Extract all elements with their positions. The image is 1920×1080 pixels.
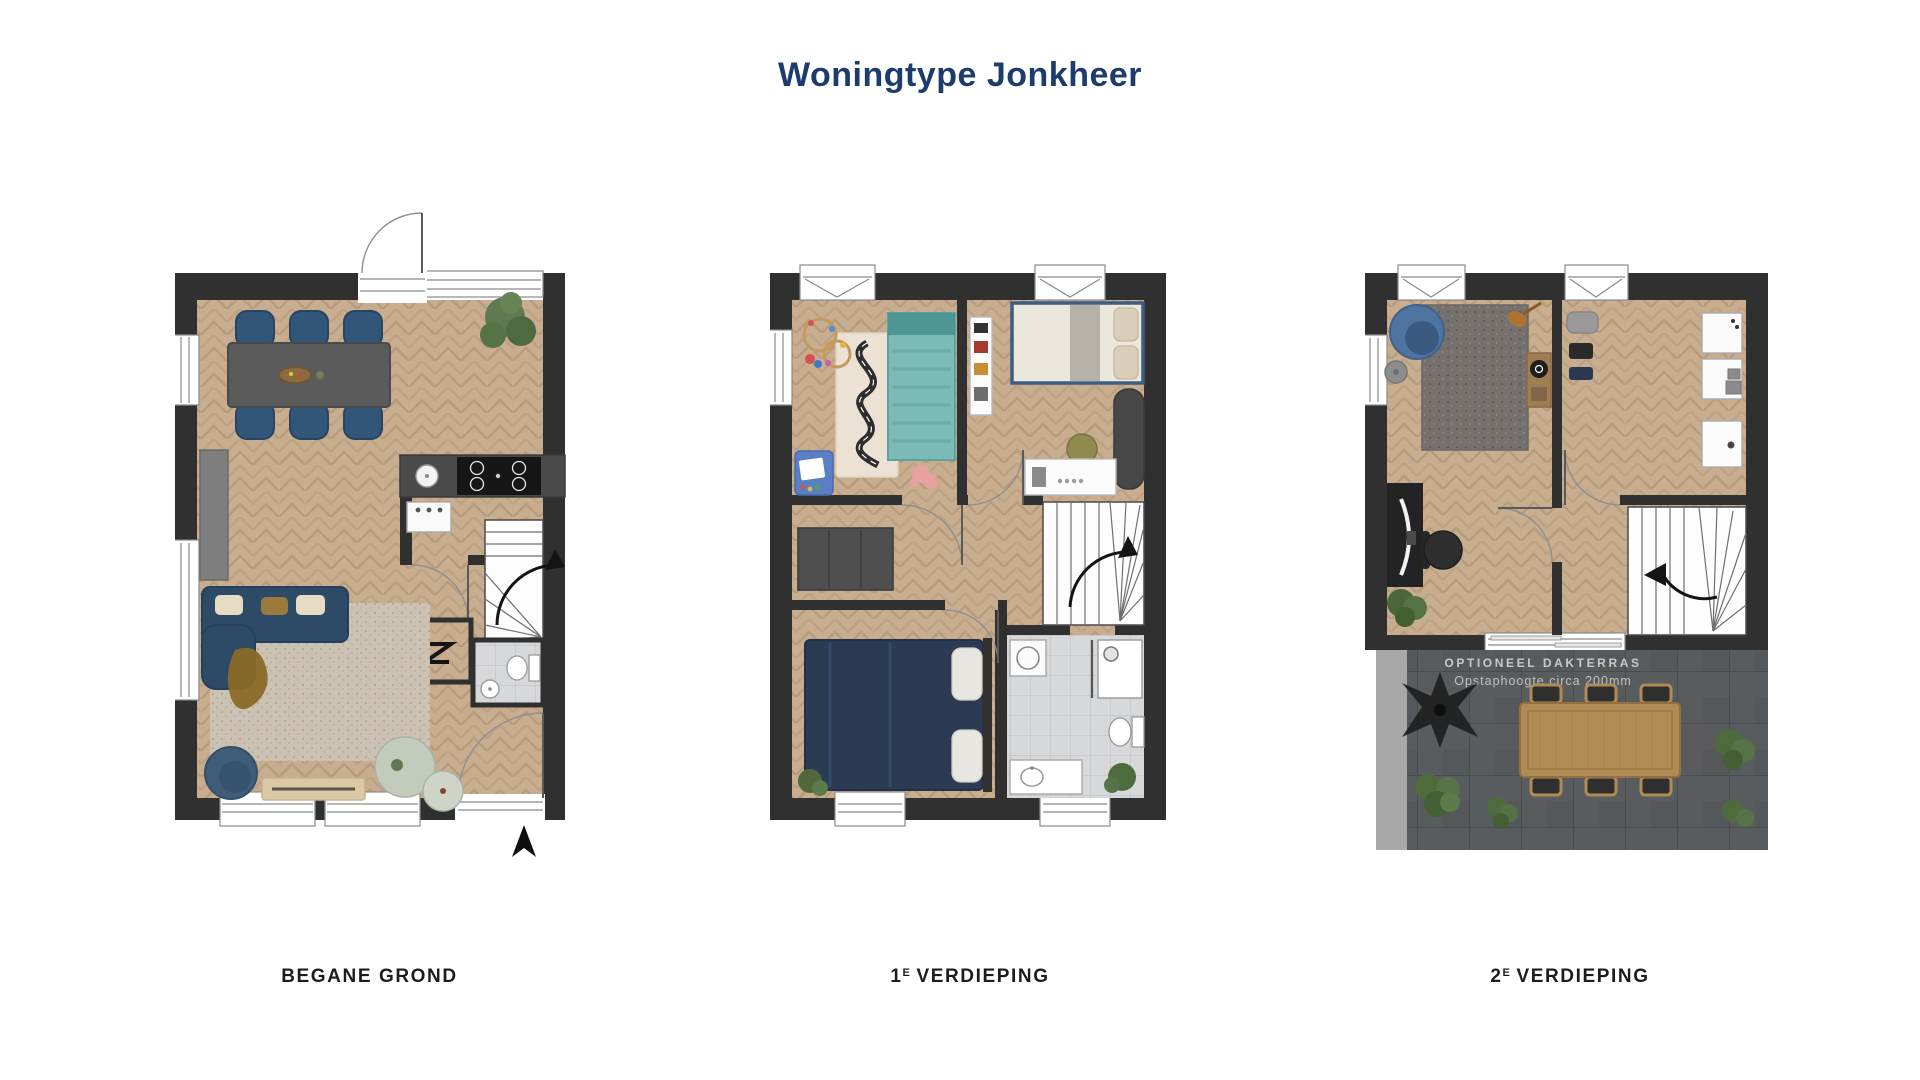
terrace-door — [1485, 633, 1625, 652]
roof-terrace: OPTIONEEL DAKTERRAS Opstaphoogte circa 2… — [1376, 650, 1768, 850]
floor-label-2e-verdieping: 2EVERDIEPING — [1365, 966, 1775, 988]
dining-table — [228, 343, 390, 407]
wall-unit — [1702, 313, 1742, 467]
window-bench — [262, 778, 365, 800]
window-bottom-left — [835, 792, 905, 826]
floor-label-1e-verdieping: 1EVERDIEPING — [770, 966, 1170, 988]
desk — [1387, 483, 1423, 587]
kids-bed — [888, 313, 955, 460]
window-left-living — [175, 540, 199, 700]
terrace-table — [1520, 703, 1680, 777]
window-top-right — [1035, 265, 1105, 300]
floorplan-2e-verdieping: OPTIONEEL DAKTERRAS Opstaphoogte circa 2… — [1365, 255, 1775, 867]
window-top-left — [800, 265, 875, 300]
page-title: Woningtype Jonkheer — [0, 56, 1920, 95]
shower — [1092, 640, 1142, 698]
north-arrow — [512, 825, 536, 857]
lounge-seat — [1114, 389, 1144, 489]
window-top-right — [1565, 265, 1628, 300]
toilet-room — [473, 640, 543, 705]
floor-label-text: 1 — [890, 966, 902, 987]
floorplan-sheet: Woningtype Jonkheer — [0, 0, 1920, 1080]
desk — [1025, 459, 1116, 495]
floorplan-begane-grond — [175, 205, 570, 865]
washbasin — [481, 680, 499, 698]
office-chair — [1421, 531, 1462, 569]
double-bed — [1012, 303, 1143, 383]
washing-machine — [1010, 640, 1046, 676]
kitchen-sink — [416, 465, 438, 487]
floorplan-2e-verdieping-svg: OPTIONEEL DAKTERRAS Opstaphoogte circa 2… — [1365, 255, 1775, 867]
master-bed — [805, 638, 992, 792]
staircase — [1043, 502, 1144, 625]
entrance-door — [358, 213, 427, 303]
sideboard — [200, 450, 228, 580]
bathroom — [1007, 635, 1144, 798]
floor-label-begane-grond: BEGANE GROND — [175, 966, 570, 988]
window-top-left — [1398, 265, 1465, 300]
cooktop — [457, 457, 541, 495]
window-left — [770, 330, 792, 405]
hall-wardrobe — [798, 528, 893, 590]
floorplan-1e-verdieping — [770, 255, 1170, 867]
kitchen-counter — [400, 455, 565, 497]
toilet — [1109, 717, 1144, 747]
terrace-note-line1: OPTIONEEL DAKTERRAS — [1444, 656, 1641, 670]
window-top-right — [425, 271, 543, 297]
lounge-chair — [1390, 305, 1444, 359]
lounge-pouf — [205, 747, 257, 799]
washbasin — [1010, 760, 1082, 794]
toilet — [507, 655, 540, 681]
bookshelf — [970, 317, 992, 415]
window-left — [1365, 335, 1387, 405]
floor-label-text: BEGANE GROND — [281, 966, 458, 987]
window-left-upper — [175, 335, 199, 405]
floor-label-text: 2 — [1490, 966, 1502, 987]
floorplan-begane-grond-svg — [175, 205, 570, 865]
pouf — [1385, 361, 1407, 383]
master-bedroom — [798, 638, 992, 796]
drawing-mat — [795, 451, 833, 495]
staircase-down — [1628, 507, 1746, 635]
dishwasher — [407, 502, 451, 532]
floorplan-1e-verdieping-svg — [770, 255, 1170, 867]
record-player-console — [1527, 353, 1551, 407]
